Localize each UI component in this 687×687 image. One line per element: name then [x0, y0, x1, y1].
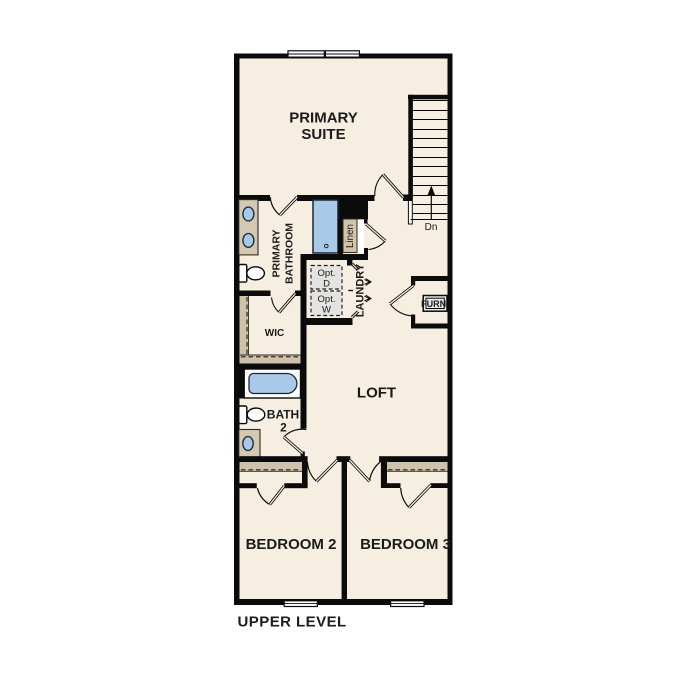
- svg-text:BATHROOM: BATHROOM: [284, 223, 296, 284]
- svg-text:LAUNDRY: LAUNDRY: [355, 263, 367, 317]
- svg-text:FURN: FURN: [421, 299, 446, 309]
- svg-text:UPPER LEVEL: UPPER LEVEL: [238, 614, 347, 631]
- svg-text:SUITE: SUITE: [301, 126, 345, 143]
- svg-text:LOFT: LOFT: [357, 385, 396, 402]
- svg-text:BATH: BATH: [267, 408, 299, 422]
- svg-text:BEDROOM 3: BEDROOM 3: [360, 536, 451, 553]
- svg-text:W: W: [322, 305, 331, 316]
- svg-text:Linen: Linen: [345, 224, 356, 248]
- svg-text:D: D: [323, 279, 330, 290]
- svg-text:BEDROOM 2: BEDROOM 2: [246, 536, 337, 553]
- svg-text:Opt.: Opt.: [318, 294, 336, 305]
- svg-text:PRIMARY: PRIMARY: [289, 110, 358, 127]
- svg-text:2: 2: [280, 421, 287, 435]
- svg-text:WIC: WIC: [265, 328, 284, 339]
- svg-text:PRIMARY: PRIMARY: [271, 229, 283, 277]
- svg-text:Opt.: Opt.: [318, 268, 336, 279]
- svg-text:Dn: Dn: [425, 222, 438, 233]
